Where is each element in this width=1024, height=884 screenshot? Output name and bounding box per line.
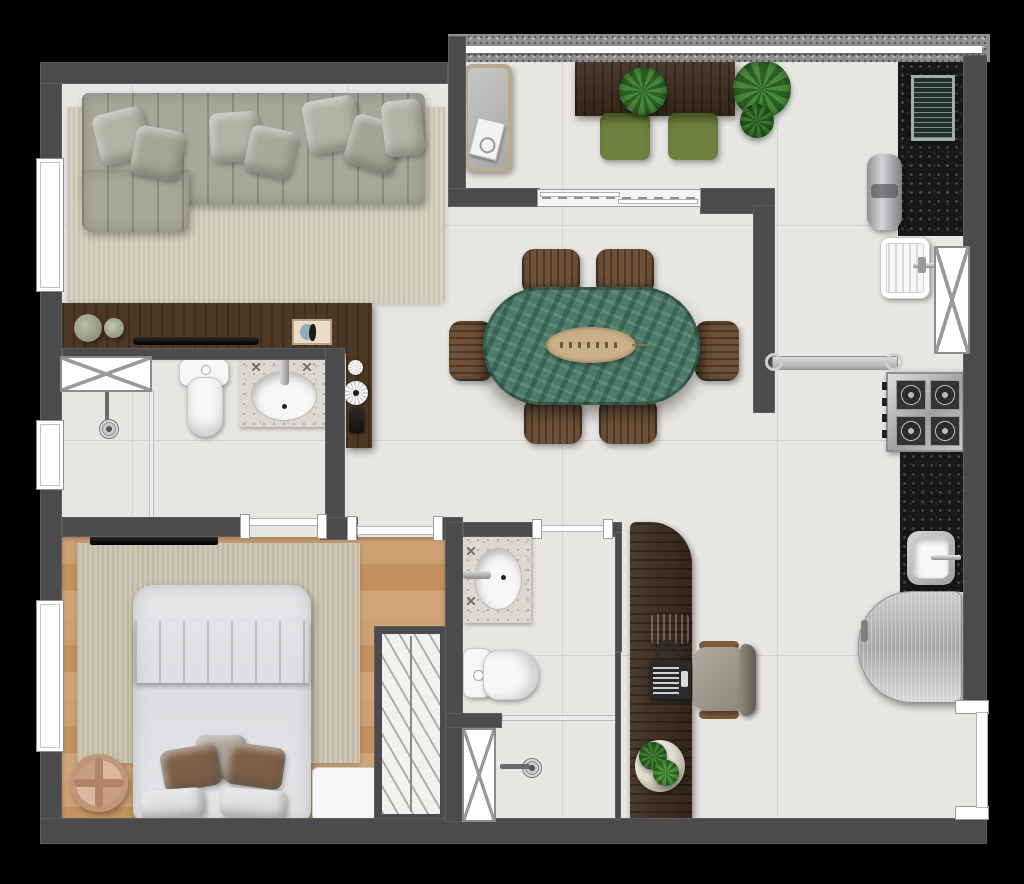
sofa-pillow	[380, 98, 426, 158]
leaf-centerpiece	[546, 327, 636, 363]
burner	[930, 380, 960, 410]
cooktop	[886, 372, 964, 452]
entry-door-leaf	[976, 712, 988, 808]
wall-bath2-right-lower	[615, 652, 621, 820]
decor-vase	[74, 314, 102, 342]
vanity-drain-dot-2	[501, 575, 506, 580]
decor-x	[252, 363, 260, 371]
window-bathroom-1	[36, 420, 64, 490]
barbecue-grill	[911, 75, 955, 141]
sliding-door-panel	[618, 199, 698, 204]
toilet-bowl-2	[483, 650, 539, 700]
burner	[930, 416, 960, 446]
decor-plate	[344, 381, 368, 405]
door-jamb	[240, 514, 250, 539]
wall-balcony-left	[448, 36, 466, 207]
bed-pillow-brown	[223, 741, 286, 791]
wall-bedroom-bath2	[445, 522, 463, 822]
wall-bath1-right	[325, 348, 345, 520]
shower-drain	[99, 419, 119, 439]
sofa-pillow	[243, 124, 300, 181]
kitchen-sink	[907, 531, 955, 585]
bedroom-bench	[312, 767, 378, 821]
vanity-faucet-2	[463, 571, 491, 579]
sliding-door-handle-ring	[885, 353, 903, 371]
pouf-cross	[74, 779, 124, 787]
balcony-chair	[600, 113, 650, 160]
kitchen-faucet	[931, 555, 961, 560]
bedroom-door-leaf	[357, 526, 435, 535]
laundry-faucet-handle	[918, 257, 926, 273]
decor-vase	[104, 318, 124, 338]
laptop-trackpad	[681, 671, 688, 687]
door-jamb	[433, 516, 443, 541]
sliding-door-handle-ring	[765, 353, 783, 371]
wall-bath2-top	[463, 522, 540, 537]
shower-glass-partition	[149, 390, 154, 518]
vanity-counter-2	[463, 535, 531, 623]
office-chair-arm	[699, 710, 739, 719]
toilet-bowl	[187, 377, 223, 437]
decor-x	[303, 363, 311, 371]
book-ring	[478, 136, 497, 155]
shower-bar-2	[500, 764, 530, 769]
heater-band	[871, 184, 898, 198]
bed-pillow-white	[220, 787, 288, 822]
bathroom-1-door-threshold	[248, 518, 320, 526]
window-bedroom	[36, 600, 64, 752]
soundbar	[133, 337, 259, 345]
wall-dining-kitchen-divider	[753, 205, 775, 413]
parapet-glass-railing	[456, 46, 982, 53]
shaft-bathroom-2	[462, 728, 496, 822]
bathroom-2-door-leaf	[541, 525, 605, 532]
door-jamb	[347, 516, 357, 541]
toilet-flush-button	[201, 365, 211, 375]
vanity-faucet	[280, 357, 289, 385]
door-jamb	[603, 519, 613, 539]
laptop-keys	[653, 666, 679, 694]
refrigerator-handle	[861, 620, 868, 642]
entry-door-jamb	[955, 806, 989, 820]
leaf-center-dots	[560, 342, 622, 348]
wall-balcony-step	[448, 188, 540, 207]
sliding-door-dashes	[542, 197, 698, 199]
kitchen-sliding-door	[772, 356, 898, 370]
office-chair-back	[740, 644, 756, 716]
floor-plan	[0, 0, 1024, 884]
office-chair-seat	[693, 647, 747, 711]
decor-frame	[292, 319, 332, 345]
wall-bath2-right	[615, 532, 622, 652]
wall-top-living	[40, 62, 448, 84]
wardrobe-frame	[374, 626, 448, 822]
water-heater	[867, 154, 902, 230]
decor-plate	[348, 360, 363, 375]
round-pouf	[70, 754, 128, 812]
door-jamb	[317, 514, 327, 539]
cooktop-knobs	[882, 382, 887, 442]
desk-plant-leaves	[653, 760, 679, 786]
wall-bath2-mid	[445, 713, 502, 728]
burner	[896, 380, 926, 410]
decor-x	[467, 597, 475, 605]
laptop	[649, 661, 691, 699]
bed-pillow-white	[140, 787, 206, 821]
door-jamb	[532, 519, 542, 539]
cabinet-shaft-bathroom-1	[60, 356, 152, 392]
table-plant	[619, 67, 667, 115]
dining-chair	[695, 321, 739, 381]
plate-center-dot	[353, 390, 359, 396]
wardrobe-rod	[410, 636, 412, 812]
leaf-stem	[632, 344, 648, 346]
wall-right-upper	[963, 55, 987, 712]
shaft-window-right	[934, 246, 970, 354]
burner	[896, 416, 926, 446]
shower-glass-partition-2	[502, 715, 616, 721]
panel-handle	[349, 407, 364, 433]
vanity-drain-dot	[282, 404, 287, 409]
decor-frame-art-dark	[309, 324, 316, 341]
balcony-chair	[668, 113, 718, 160]
wall-bottom	[40, 818, 987, 844]
runner-blanket	[135, 621, 309, 683]
vanity-basin-2	[474, 548, 522, 610]
wall-bath1-bottom	[62, 517, 248, 537]
balcony-sliding-door	[537, 189, 701, 207]
sofa-pillow	[129, 124, 187, 182]
potted-plant-small	[740, 104, 774, 138]
vanity-counter	[239, 359, 331, 427]
refrigerator	[858, 591, 962, 703]
desk-plant	[635, 740, 685, 792]
window-living	[36, 158, 64, 292]
decor-x	[467, 547, 475, 555]
